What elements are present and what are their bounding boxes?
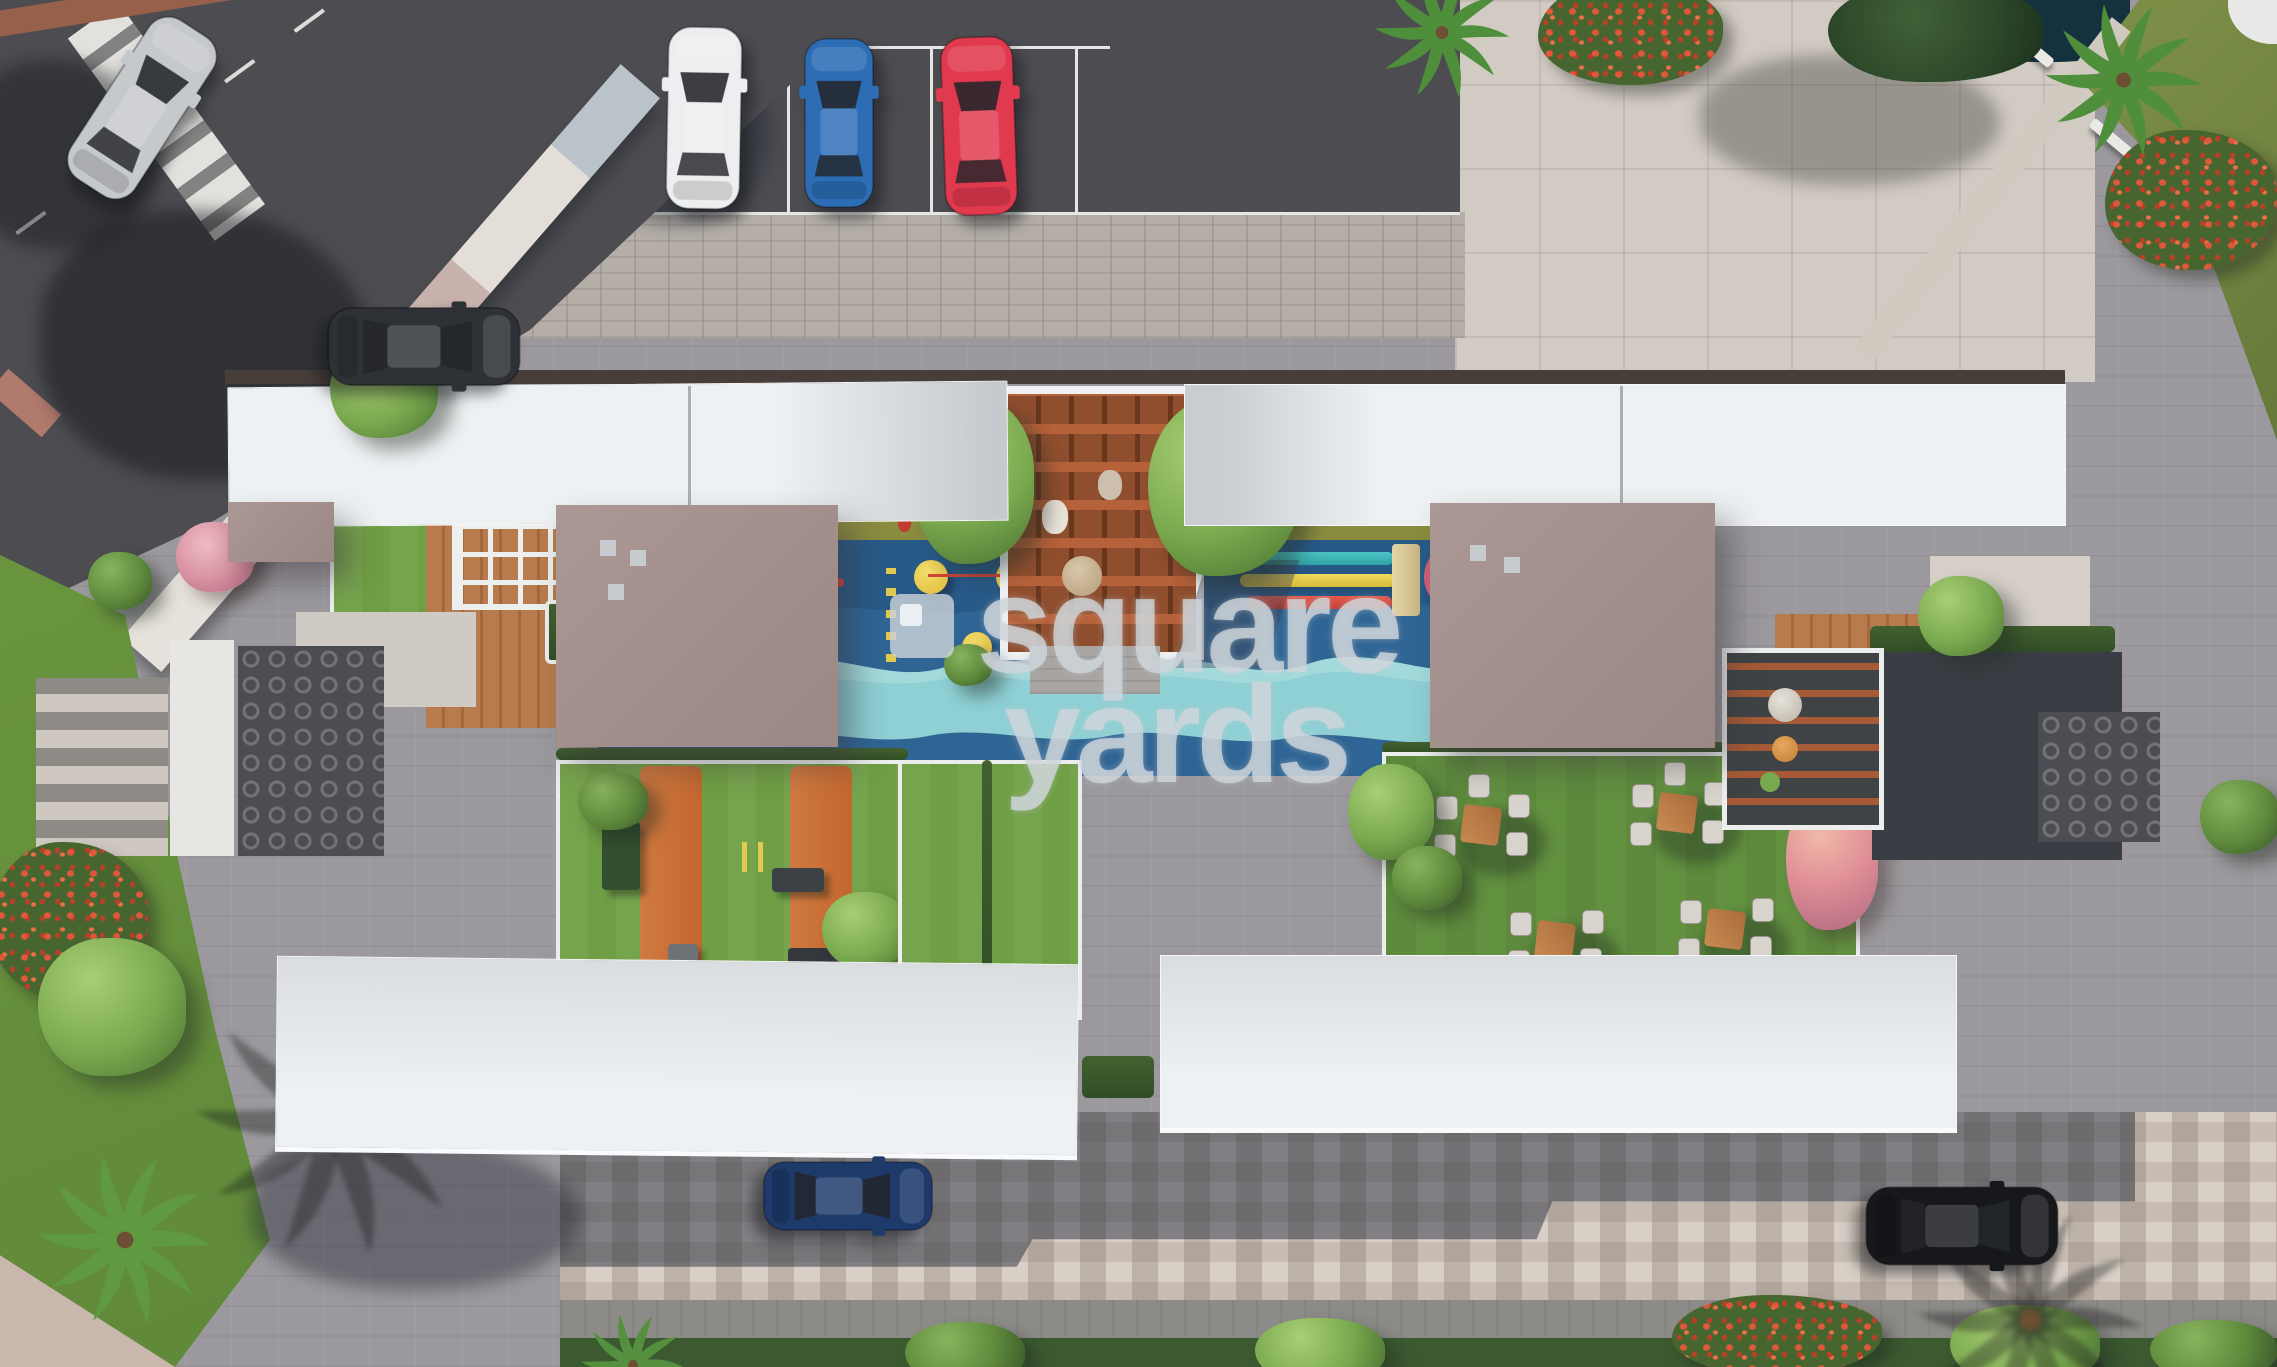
chair [1582, 910, 1604, 934]
white-parked-car [658, 21, 749, 215]
palm-tree [548, 1305, 718, 1367]
chair [1630, 822, 1652, 846]
parking-stall-line [1075, 48, 1078, 213]
hedge-strip [556, 748, 908, 760]
tree [88, 552, 152, 610]
chair [1436, 796, 1458, 820]
lawn-table [1656, 792, 1698, 834]
chair [1680, 900, 1702, 924]
roof-vents [1470, 545, 1486, 561]
palm-tree [20, 1140, 230, 1340]
low-roof-mauve-west [556, 505, 838, 747]
watermark-word-yards: yards [1004, 666, 1347, 804]
chair [1752, 898, 1774, 922]
white-walk [170, 640, 234, 856]
chair [1508, 794, 1530, 818]
chair [1510, 912, 1532, 936]
black-car [1857, 1180, 2067, 1272]
low-roof-mauve [228, 502, 334, 562]
red-flowering-shrub [1672, 1295, 1882, 1367]
chair [1632, 784, 1654, 808]
chair [1468, 774, 1490, 798]
lawn-table [1460, 804, 1502, 846]
red-parked-car [931, 30, 1028, 221]
food-platter [1772, 736, 1798, 762]
patterned-entry-court [238, 646, 384, 856]
lawn-seating-set [1614, 756, 1738, 868]
palm-tree [2026, 0, 2221, 170]
tree [38, 938, 186, 1076]
site-plan-render: square yards [0, 0, 2277, 1367]
roof-vents [600, 540, 616, 556]
roof-seam [688, 386, 691, 520]
south-block-roof-west [275, 956, 1079, 1160]
round-table [1768, 688, 1802, 722]
gym-equipment [602, 822, 640, 890]
navy-car [759, 1155, 937, 1237]
shrub [905, 1322, 1025, 1367]
chair [1702, 820, 1724, 844]
tree [2200, 780, 2277, 854]
shrub [1255, 1318, 1385, 1367]
shrub [578, 772, 648, 830]
food-platter [1760, 772, 1780, 792]
bbq-beam-deck [1722, 648, 1884, 830]
gym-pole [758, 842, 763, 872]
dark-suv [322, 301, 527, 393]
low-roof-mauve-east [1430, 503, 1715, 748]
hedge-planter [1082, 1056, 1154, 1098]
person-figure [1098, 470, 1122, 500]
blue-parked-car [797, 34, 881, 212]
person-figure [1042, 500, 1068, 534]
tree [1392, 846, 1462, 910]
roof-seam [1620, 386, 1623, 522]
gym-bench [772, 868, 824, 892]
south-block-roof-east [1160, 955, 1957, 1133]
patterned-court [2038, 712, 2160, 842]
lawn-table [1704, 908, 1746, 950]
palm-tree [1352, 0, 1532, 110]
play-pod [914, 560, 948, 594]
striped-entry-paving [36, 678, 168, 856]
square-yards-logo [890, 594, 954, 658]
gym-pole [742, 842, 747, 872]
tree [1918, 576, 2004, 656]
tree [822, 892, 910, 968]
chair [1664, 762, 1686, 786]
chair [1506, 832, 1528, 856]
